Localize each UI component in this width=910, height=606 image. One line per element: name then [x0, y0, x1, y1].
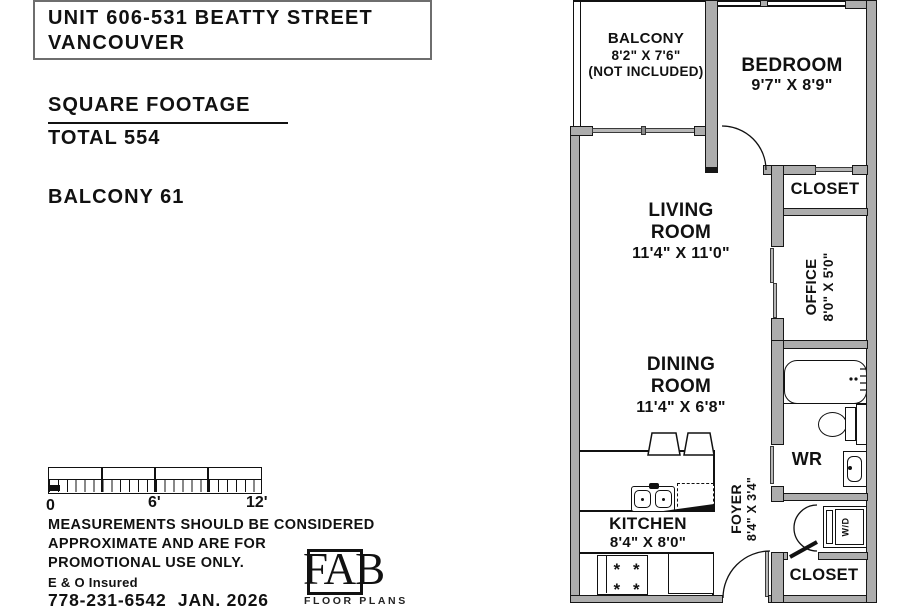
kitchen-faucet — [649, 483, 659, 489]
kitchen-dims: 8'4" X 8'0" — [578, 534, 718, 552]
closet-top-label: CLOSET — [784, 180, 866, 199]
dishwasher — [677, 483, 714, 512]
foyer-dims: 8'4" X 3'4" — [745, 454, 760, 564]
bedroom-name: BEDROOM — [718, 55, 866, 77]
square-footage-total: TOTAL 554 — [48, 127, 160, 150]
balcony-footage: BALCONY 61 — [48, 186, 184, 209]
burner: * — [613, 560, 620, 580]
dining-dims: 11'4" X 6'8" — [586, 399, 776, 418]
wall-bedroom-top-cap — [845, 0, 867, 9]
vanity-faucet — [848, 466, 852, 470]
scale-label-0: 0 — [46, 497, 55, 515]
washer-dryer-panel — [826, 510, 833, 544]
wall-bottom-right — [768, 595, 877, 603]
balcony-rail-top — [573, 0, 708, 2]
bathtub — [784, 360, 867, 404]
living-name1: LIVING — [586, 200, 776, 222]
wall-bottom-left — [570, 595, 723, 603]
bedroom-dims: 9'7" X 8'9" — [718, 77, 866, 96]
wall-center-d — [771, 486, 784, 502]
wall-bedroom-bottom-right — [852, 165, 868, 175]
balcony-dims: 8'2" X 7'6" — [578, 48, 714, 64]
fab-logo: FAB FLOOR PLANS — [297, 543, 417, 606]
bedroom-window — [718, 0, 846, 7]
balcony-name: BALCONY — [578, 30, 714, 48]
wr-door-leaf — [770, 446, 774, 484]
title-line1: UNIT 606-531 BEATTY STREET — [48, 6, 430, 31]
wr-label: WR — [785, 449, 829, 470]
title-box: UNIT 606-531 BEATTY STREET VANCOUVER — [33, 0, 432, 60]
dining-room-label: DINING ROOM 11'4" X 6'8" — [586, 354, 776, 418]
closet-bottom-name: CLOSET — [782, 566, 866, 585]
scale-label-6: 6' — [148, 494, 161, 512]
scale-bar-major-tick — [207, 468, 209, 492]
kitchen-label: KITCHEN 8'4" X 8'0" — [578, 514, 718, 552]
closet2-diagonal-door — [790, 542, 817, 557]
refrigerator — [668, 553, 714, 594]
wall-balcony-cap-left — [570, 126, 593, 136]
office-name: OFFICE — [803, 222, 821, 352]
wd-closet-door-arc — [794, 505, 817, 551]
office-dims: 8'0" X 5'0" — [821, 222, 837, 352]
wall-divider-end-cap — [705, 167, 718, 173]
balcony-note: (NOT INCLUDED) — [578, 64, 714, 80]
wall-wd-bottom — [818, 552, 868, 560]
kitchen-name: KITCHEN — [578, 514, 718, 534]
square-footage-heading: SQUARE FOOTAGE — [48, 94, 288, 124]
bedroom-label: BEDROOM 9'7" X 8'9" — [718, 55, 866, 96]
foyer-name: FOYER — [728, 454, 745, 564]
fab-logo-subtext: FLOOR PLANS — [304, 595, 408, 606]
title-line2: VANCOUVER — [48, 31, 430, 56]
wall-closet-bottom — [771, 208, 868, 216]
bedroom-window-mullion — [760, 0, 768, 7]
entry-door-leaf — [765, 551, 769, 597]
wr-name: WR — [785, 449, 829, 470]
office-door-leaf-lower — [773, 283, 777, 318]
closet-bottom-label: CLOSET — [782, 566, 866, 585]
wall-right-outer — [866, 0, 877, 603]
bedroom-closet-sliding-door — [815, 167, 853, 172]
bedroom-door-arc — [722, 126, 766, 170]
sink-drain-dot — [662, 498, 665, 501]
floorplan-page: UNIT 606-531 BEATTY STREET VANCOUVER SQU… — [0, 0, 910, 606]
burner: * — [633, 560, 640, 580]
scale-bar-zero-block — [50, 485, 60, 491]
stove: * * * * — [597, 555, 648, 595]
fab-logo-text: FAB — [303, 543, 384, 595]
living-dims: 11'4" X 11'0" — [586, 245, 776, 264]
closet-top-name: CLOSET — [784, 180, 866, 199]
scale-label-12: 12' — [246, 494, 268, 512]
stove-burners: * * * * — [607, 556, 646, 593]
toilet-tank — [845, 407, 856, 441]
scale-bar — [48, 467, 262, 494]
tub-deck-line — [784, 403, 867, 404]
scale-bar-major-tick — [101, 468, 103, 492]
living-name2: ROOM — [586, 222, 776, 244]
toilet-bowl — [818, 412, 847, 437]
wall-wr-bottom — [771, 493, 868, 501]
scale-bar-major-tick — [154, 468, 156, 492]
balcony-slider-tick — [641, 126, 646, 135]
disclaimer-line1: MEASUREMENTS SHOULD BE CONSIDERED — [48, 516, 375, 535]
sink-drain-dot — [641, 498, 644, 501]
office-label: OFFICE 8'0" X 5'0" — [801, 222, 839, 352]
living-room-label: LIVING ROOM 11'4" X 11'0" — [586, 200, 776, 264]
balcony-label: BALCONY 8'2" X 7'6" (NOT INCLUDED) — [578, 30, 714, 80]
dining-name1: DINING — [586, 354, 776, 376]
wall-balcony-bedroom-divider — [705, 0, 718, 173]
stove-oven-panel — [598, 556, 607, 593]
washer-dryer-door — [835, 509, 864, 545]
foyer-label: FOYER 8'4" X 3'4" — [727, 454, 761, 564]
dining-name2: ROOM — [586, 376, 776, 398]
